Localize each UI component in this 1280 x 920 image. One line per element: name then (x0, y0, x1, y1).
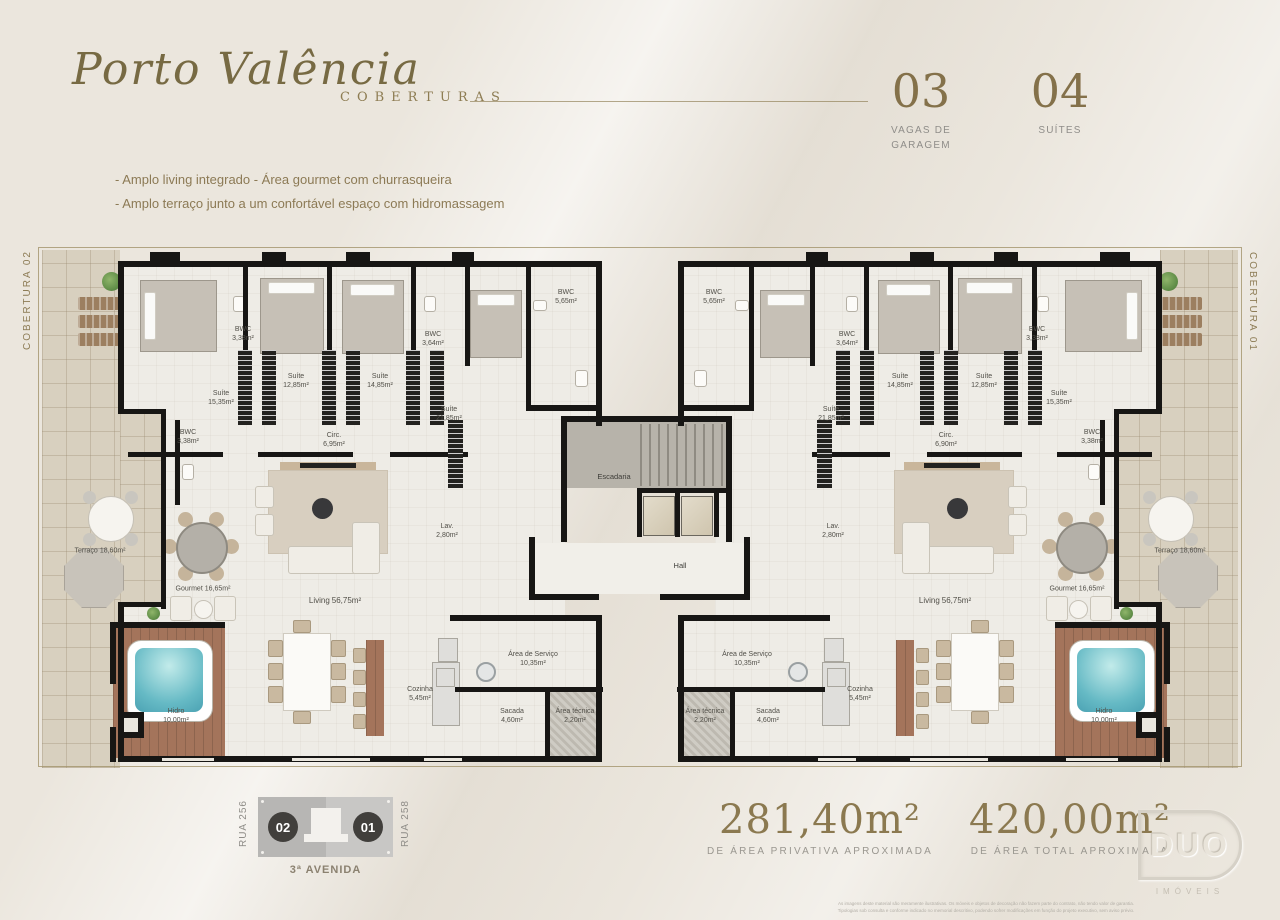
elevator-cabin (643, 496, 675, 536)
dining-chair (268, 640, 283, 657)
wall-segment (529, 537, 535, 599)
stool (916, 692, 929, 707)
terrace-chair (125, 491, 138, 504)
room-label: BWC5,65m² (703, 288, 725, 306)
keyplan-diagram: 02 01 (258, 797, 393, 857)
wall-segment (749, 261, 754, 411)
room-label: BWC3,38m² (1081, 428, 1103, 446)
elevator-cabin (681, 496, 713, 536)
wall-segment (526, 261, 531, 411)
hall-label: Hall (674, 561, 687, 571)
lounge-chair (1161, 333, 1202, 346)
dining-chair (936, 640, 951, 657)
bath-fixture (533, 300, 547, 311)
wall-segment (110, 622, 116, 684)
duo-logo: DUO IMÓVEIS (1138, 810, 1242, 896)
dining-chair (331, 640, 346, 657)
keyplan-dot (387, 851, 390, 854)
sofa (902, 522, 930, 574)
room-label: Circ.6,95m² (323, 431, 345, 449)
hall-floor (535, 543, 744, 594)
bath-fixture (575, 370, 588, 387)
stairs-label: Escadaria (597, 472, 630, 482)
fridge (824, 638, 844, 662)
private-area-value: 281,40m² (690, 796, 950, 844)
wall-segment (678, 615, 830, 621)
side-table (1069, 600, 1088, 619)
balcony-bump (452, 252, 474, 261)
private-area-label: DE ÁREA PRIVATIVA APROXIMADA (690, 846, 950, 857)
cobertura-01-tag: COBERTURA 01 (1247, 252, 1258, 352)
sofa (352, 522, 380, 574)
armchair (1046, 596, 1068, 621)
keyplan-unit-01-badge: 01 (353, 812, 383, 842)
wall-segment (118, 261, 124, 413)
bed (140, 280, 217, 352)
bath-fixture (846, 296, 858, 312)
wall-segment (1114, 602, 1162, 607)
legal-disclaimer: As imagens deste material são meramente … (830, 901, 1142, 915)
room-label: BWC3,64m² (836, 330, 858, 348)
stat-suites-value: 04 (1005, 66, 1115, 117)
room-label: Suíte14,85m² (367, 372, 393, 390)
room-label: Terraço18,60m² (1153, 546, 1206, 555)
wall-niche (124, 718, 138, 732)
bath-fixture (424, 296, 436, 312)
room-label: Terraço18,60m² (73, 546, 126, 555)
wall-segment (118, 409, 166, 414)
stove (436, 668, 455, 687)
window-gap (910, 758, 988, 761)
dining-chair (999, 686, 1014, 703)
stool (353, 648, 366, 663)
room-label: Living56,75m² (308, 596, 362, 606)
sofa (255, 514, 274, 536)
terrace-chair (1185, 491, 1198, 504)
wall-segment (561, 416, 567, 542)
coffee-table (947, 498, 968, 519)
terrace-chair (1143, 491, 1156, 504)
balcony-bump (806, 252, 828, 261)
duo-logo-subtext: IMÓVEIS (1138, 887, 1242, 896)
room-label: BWC3,38m² (232, 325, 254, 343)
dining-chair (293, 711, 311, 724)
umbrella (1158, 548, 1218, 608)
dining-chair (936, 663, 951, 680)
wall-segment (679, 405, 754, 411)
dining-chair (971, 620, 989, 633)
header-divider-line (470, 101, 868, 102)
side-table (194, 600, 213, 619)
wall-niche (1142, 718, 1156, 732)
dining-chair (268, 663, 283, 680)
keyplan-dot (387, 800, 390, 803)
wall-segment (465, 261, 470, 366)
room-label: Suíte12,85m² (283, 372, 309, 390)
avenue-label: 3ª AVENIDA (258, 864, 393, 876)
bath-fixture (1037, 296, 1049, 312)
window-gap (292, 758, 370, 761)
window-gap (424, 758, 462, 761)
feature-item: - Amplo living integrado - Área gourmet … (115, 168, 504, 192)
balcony-bump (994, 252, 1018, 261)
window-gap (162, 758, 214, 761)
wall-segment (258, 452, 353, 457)
wall-segment (714, 490, 719, 537)
closet (262, 350, 276, 425)
room-label: Área de Serviço10,35m² (508, 650, 558, 668)
terrace-chair (125, 533, 138, 546)
keyplan-dot (261, 800, 264, 803)
tv (300, 463, 356, 468)
gourmet-chair (1042, 539, 1057, 554)
wall-segment (810, 261, 815, 366)
bed (342, 280, 404, 354)
wall-segment (1164, 622, 1170, 684)
balcony-bump (262, 252, 286, 261)
dining-chair (999, 663, 1014, 680)
wall-segment (526, 405, 601, 411)
wall-segment (545, 690, 550, 762)
room-label: Cozinha5,45m² (407, 685, 433, 703)
stool (353, 714, 366, 729)
hot-tub-water (135, 648, 203, 712)
gourmet-table (176, 522, 228, 574)
gourmet-table (1056, 522, 1108, 574)
stool (916, 670, 929, 685)
sofa (1008, 514, 1027, 536)
hot-tub-water (1077, 648, 1145, 712)
plant (147, 607, 160, 620)
terrace-chair (1143, 533, 1156, 546)
wall-segment (455, 687, 603, 692)
umbrella (64, 548, 124, 608)
wall-segment (678, 261, 684, 426)
wall-segment (118, 602, 166, 607)
bed (470, 290, 522, 358)
wall-segment (1156, 261, 1162, 413)
balcony-bump (346, 252, 370, 261)
sofa (288, 546, 362, 574)
wall-segment (1055, 622, 1170, 628)
window-gap (1066, 758, 1118, 761)
room-label: Suíte21,85m² (436, 405, 462, 423)
bed (878, 280, 940, 354)
coffee-table (312, 498, 333, 519)
dining-chair (999, 640, 1014, 657)
lounge-chair (1161, 297, 1202, 310)
armchair (170, 596, 192, 621)
bed (958, 278, 1022, 354)
lounge-chair (78, 333, 119, 346)
wall-segment (675, 490, 680, 537)
closet (238, 350, 252, 425)
room-label: Gourmet16,65m² (175, 584, 232, 593)
armchair (1090, 596, 1112, 621)
private-area-stat: 281,40m² DE ÁREA PRIVATIVA APROXIMADA (690, 796, 950, 857)
feature-list: - Amplo living integrado - Área gourmet … (115, 168, 504, 216)
wall-segment (161, 409, 166, 609)
closet (817, 420, 832, 488)
wall-segment (450, 615, 602, 621)
room-label: Lav.2,80m² (822, 522, 844, 540)
brochure-page: Porto Valência COBERTURAS - Amplo living… (0, 0, 1280, 920)
cobertura-02-tag: COBERTURA 02 (22, 250, 33, 350)
room-label: Sacada4,60m² (500, 707, 524, 725)
wall-segment (637, 490, 642, 537)
bath-fixture (694, 370, 707, 387)
stat-garage-value: 03 (866, 66, 976, 117)
terrace-chair (83, 533, 96, 546)
room-label: Hidro10,00m² (1091, 707, 1117, 725)
dining-chair (971, 711, 989, 724)
room-label: Gourmet16,65m² (1049, 584, 1106, 593)
dining-chair (331, 663, 346, 680)
room-label: Living56,75m² (918, 596, 972, 606)
room-label: Lav.2,80m² (436, 522, 458, 540)
duo-logo-box: DUO (1138, 810, 1242, 880)
terrace-chair (83, 491, 96, 504)
wall-segment (730, 690, 735, 762)
keyplan-unit-02-badge: 02 (268, 812, 298, 842)
wall-segment (596, 261, 602, 426)
stat-suites-label: SUÍTES (1005, 123, 1115, 138)
room-label: Área técnica2,20m² (550, 707, 600, 725)
balcony-bump (150, 252, 180, 261)
lounge-chair (78, 297, 119, 310)
dining-table (951, 633, 999, 711)
sideboard (366, 640, 384, 736)
brand-logotype: Porto Valência (72, 44, 421, 95)
bath-fixture (1088, 464, 1100, 480)
room-label: Circ.6,90m² (935, 431, 957, 449)
wall-segment (110, 727, 116, 762)
wall-segment (110, 622, 225, 628)
room-label: Hidro10,00m² (163, 707, 189, 725)
armchair (214, 596, 236, 621)
wall-segment (529, 594, 599, 600)
room-label: BWC3,38m² (1026, 325, 1048, 343)
stool (353, 670, 366, 685)
dining-chair (268, 686, 283, 703)
stat-garage-label: VAGAS DE GARAGEM (866, 123, 976, 153)
window-gap (818, 758, 856, 761)
sofa (255, 486, 274, 508)
wall-segment (1114, 409, 1162, 414)
bath-fixture (735, 300, 749, 311)
stove (827, 668, 846, 687)
collection-title: COBERTURAS (340, 90, 507, 105)
room-label: BWC3,64m² (422, 330, 444, 348)
wall-segment (927, 452, 1022, 457)
room-label: Área de Serviço10,35m² (722, 650, 772, 668)
room-label: BWC3,38m² (177, 428, 199, 446)
balcony-bump (910, 252, 934, 261)
street-label-rua-258: RUA 258 (400, 800, 411, 847)
wall-segment (1164, 727, 1170, 762)
stool (916, 648, 929, 663)
bed (760, 290, 812, 358)
closet (448, 420, 463, 488)
closet (920, 350, 934, 425)
room-label: Área técnica2,20m² (680, 707, 730, 725)
wall-segment (660, 594, 750, 600)
feature-item: - Amplo terraço junto a um confortável e… (115, 192, 504, 216)
closet (1004, 350, 1018, 425)
dining-chair (293, 620, 311, 633)
wall-segment (561, 416, 732, 422)
closet (944, 350, 958, 425)
bath-fixture (182, 464, 194, 480)
closet (860, 350, 874, 425)
room-label: Suíte21,85m² (818, 405, 844, 423)
room-label: Suíte12,85m² (971, 372, 997, 390)
stool (353, 692, 366, 707)
room-label: BWC5,65m² (555, 288, 577, 306)
room-label: Suíte15,35m² (208, 389, 234, 407)
closet (1028, 350, 1042, 425)
washer (788, 662, 808, 682)
closet (406, 350, 420, 425)
sideboard (896, 640, 914, 736)
tv (924, 463, 980, 468)
lounge-chair (1161, 315, 1202, 328)
wall-segment (677, 687, 825, 692)
bed (260, 278, 324, 354)
wall-segment (744, 537, 750, 599)
washer (476, 662, 496, 682)
balcony-bump (1100, 252, 1130, 261)
closet (346, 350, 360, 425)
stair-treads (640, 424, 726, 486)
closet (322, 350, 336, 425)
stat-suites: 04 SUÍTES (1005, 66, 1115, 138)
sofa (1008, 486, 1027, 508)
fridge (438, 638, 458, 662)
stat-garage: 03 VAGAS DE GARAGEM (866, 66, 976, 153)
room-label: Suíte14,85m² (887, 372, 913, 390)
wall-segment (726, 416, 732, 542)
lounge-chair (78, 315, 119, 328)
keyplan-dot (261, 851, 264, 854)
building-icon (311, 808, 341, 834)
room-label: Sacada4,60m² (756, 707, 780, 725)
dining-chair (936, 686, 951, 703)
stool (916, 714, 929, 729)
duo-logo-text: DUO (1150, 827, 1230, 864)
room-label: Suíte15,35m² (1046, 389, 1072, 407)
dining-table (283, 633, 331, 711)
dining-chair (331, 686, 346, 703)
plant (1120, 607, 1133, 620)
street-label-rua-256: RUA 256 (238, 800, 249, 847)
wall-segment (1114, 409, 1119, 609)
terrace-chair (1185, 533, 1198, 546)
bed (1065, 280, 1142, 352)
room-label: Cozinha5,45m² (847, 685, 873, 703)
sofa (920, 546, 994, 574)
